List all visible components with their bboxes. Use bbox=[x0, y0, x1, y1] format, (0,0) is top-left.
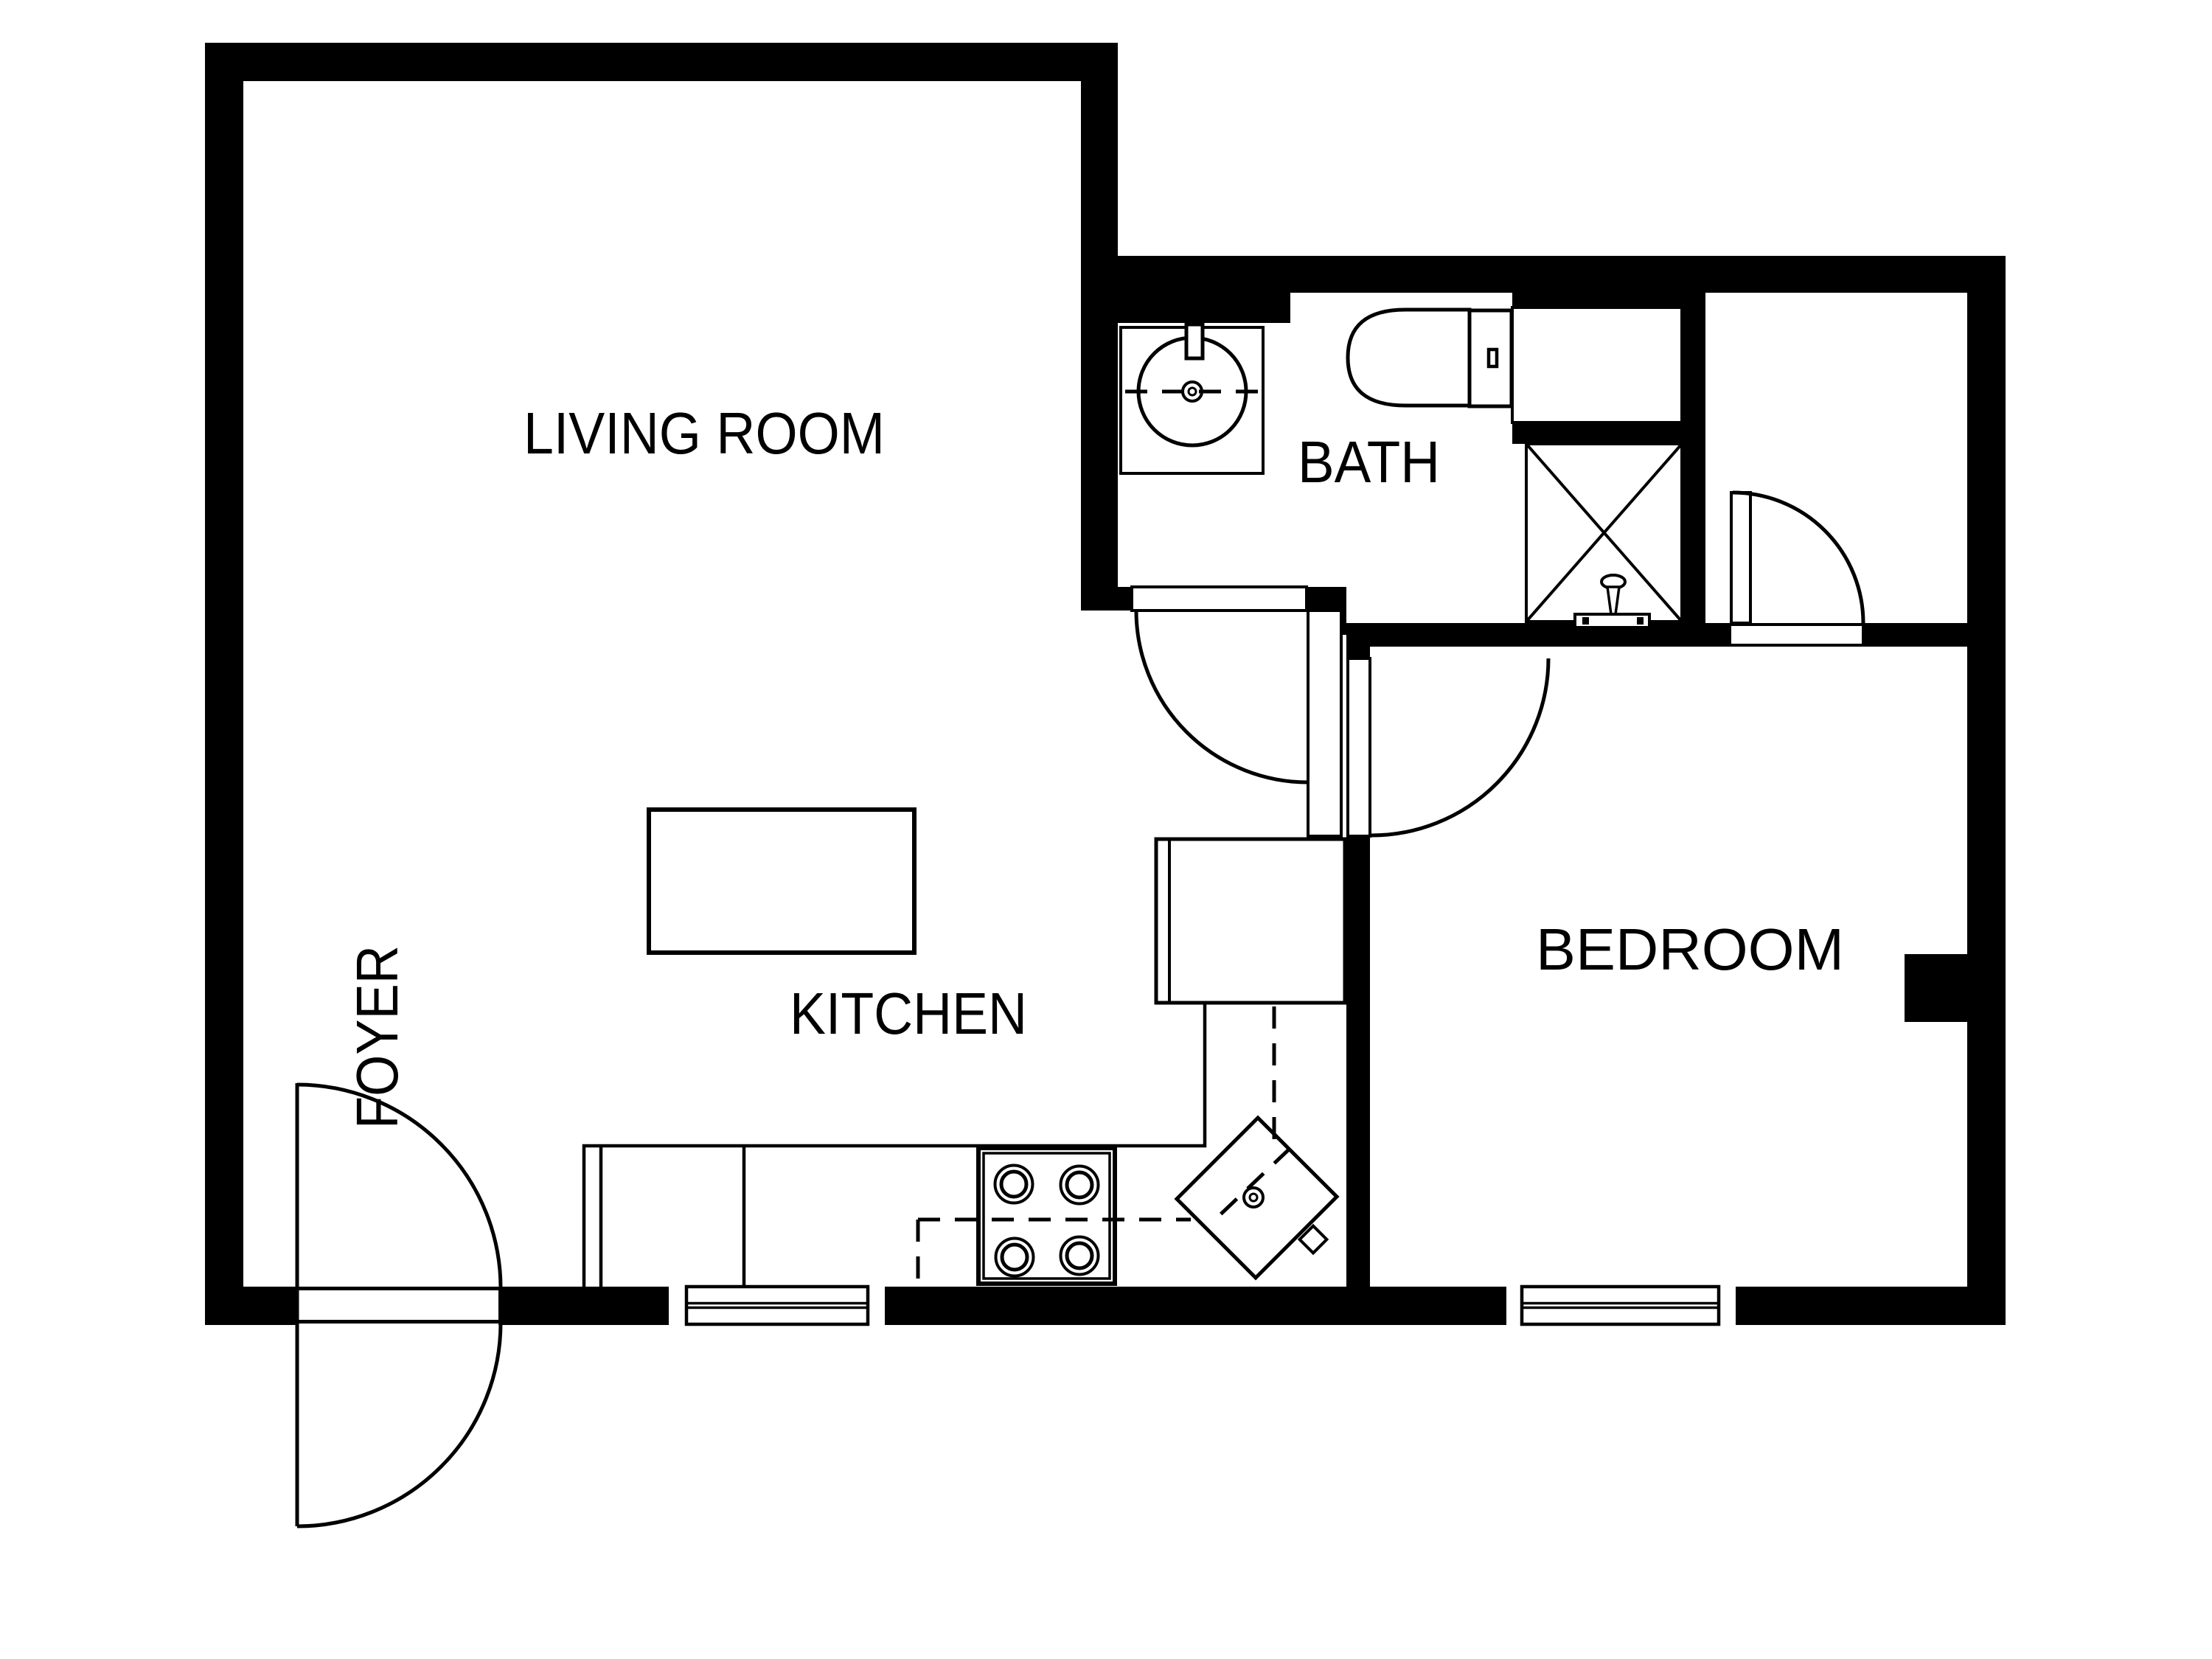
svg-text:FOYER: FOYER bbox=[344, 945, 410, 1129]
svg-text:BEDROOM: BEDROOM bbox=[1536, 917, 1844, 982]
svg-text:BATH: BATH bbox=[1298, 429, 1440, 495]
svg-text:LIVING ROOM: LIVING ROOM bbox=[524, 400, 885, 466]
svg-text:KITCHEN: KITCHEN bbox=[790, 981, 1027, 1046]
